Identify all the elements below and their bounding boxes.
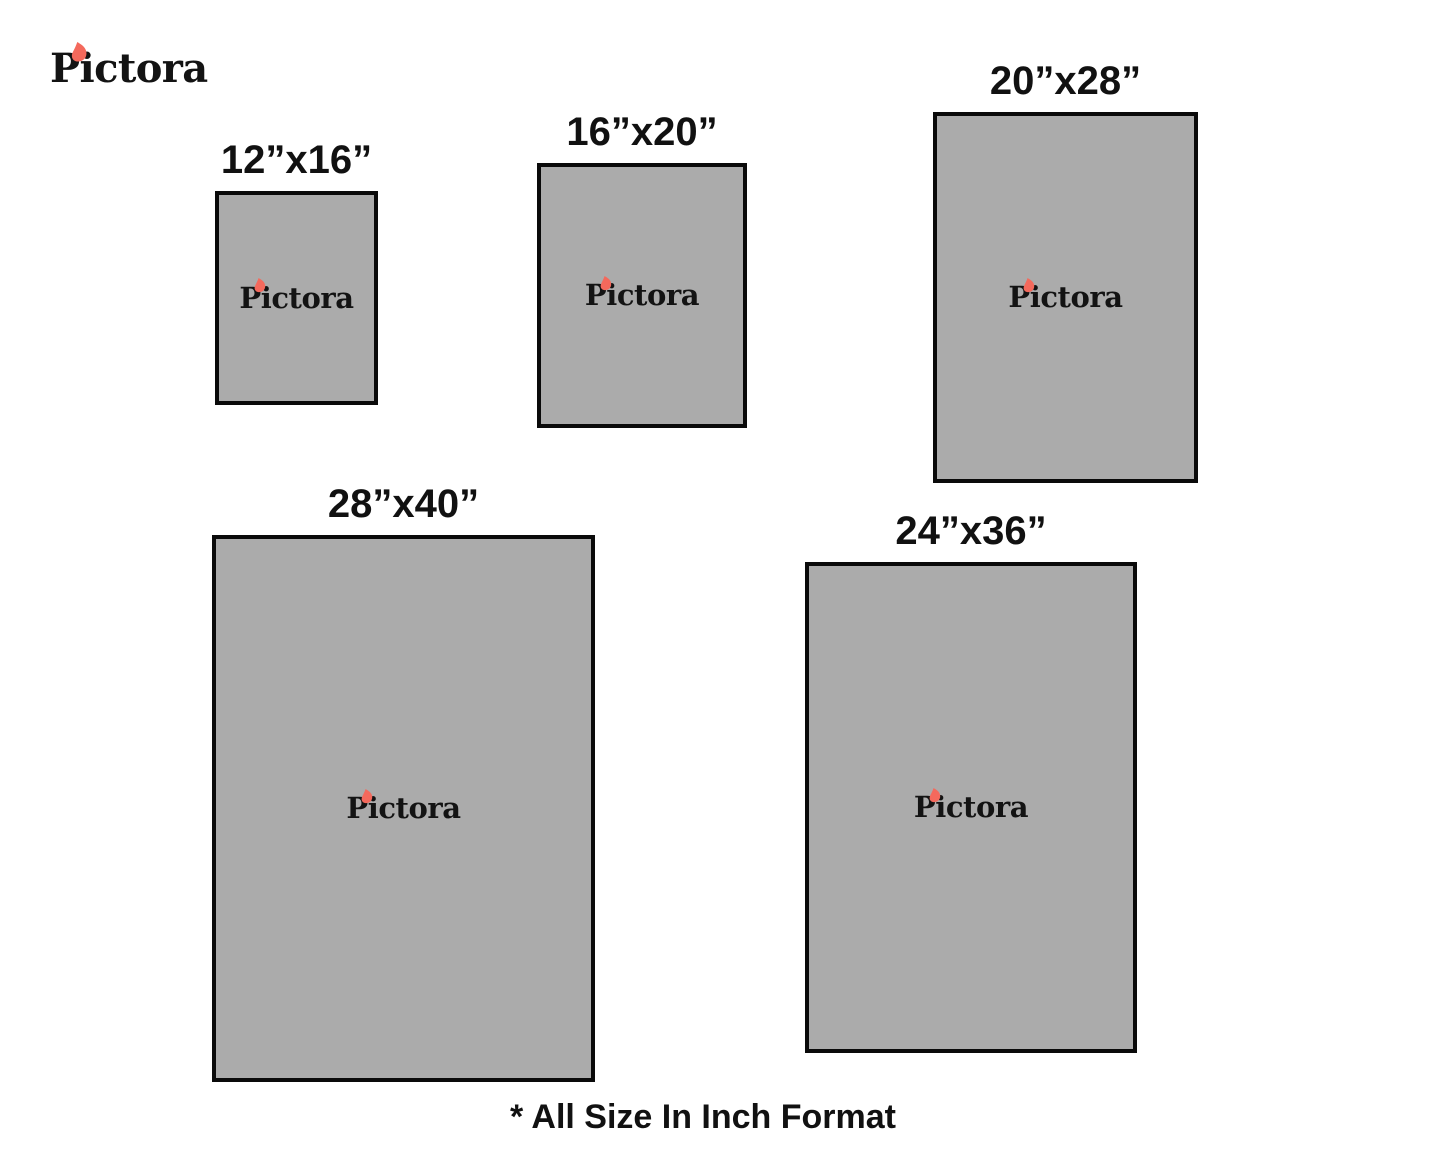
size-chart-page: Pictora 12”x16” Pictora 16”x20” Pictora (0, 0, 1445, 1156)
pictora-header-logo: Pictora (50, 49, 208, 89)
size-box-24x36: Pictora (805, 562, 1137, 1053)
size-item-28x40: 28”x40” Pictora (212, 482, 595, 1082)
footnote: * All Size In Inch Format (510, 1098, 896, 1137)
size-label-16x20: 16”x20” (537, 110, 747, 154)
size-box-28x40: Pictora (212, 535, 595, 1082)
flame-icon (600, 276, 613, 291)
size-label-12x16: 12”x16” (215, 138, 378, 182)
size-box-12x16: Pictora (215, 191, 378, 405)
size-label-20x28: 20”x28” (933, 59, 1198, 103)
flame-icon (254, 278, 267, 293)
pictora-logo: Pictora (914, 793, 1028, 822)
size-box-16x20: Pictora (537, 163, 747, 428)
flame-icon (361, 789, 374, 804)
size-item-16x20: 16”x20” Pictora (537, 110, 747, 428)
size-item-24x36: 24”x36” Pictora (805, 509, 1137, 1053)
pictora-logo: Pictora (1008, 283, 1122, 312)
pictora-logo: Pictora (346, 794, 460, 823)
size-label-24x36: 24”x36” (805, 509, 1137, 553)
size-box-20x28: Pictora (933, 112, 1198, 483)
size-item-12x16: 12”x16” Pictora (215, 138, 378, 405)
size-item-20x28: 20”x28” Pictora (933, 59, 1198, 483)
flame-icon (1023, 278, 1036, 293)
flame-icon (71, 42, 89, 63)
pictora-logo: Pictora (585, 281, 699, 310)
flame-icon (929, 788, 942, 803)
pictora-logo: Pictora (239, 284, 353, 313)
size-label-28x40: 28”x40” (212, 482, 595, 526)
